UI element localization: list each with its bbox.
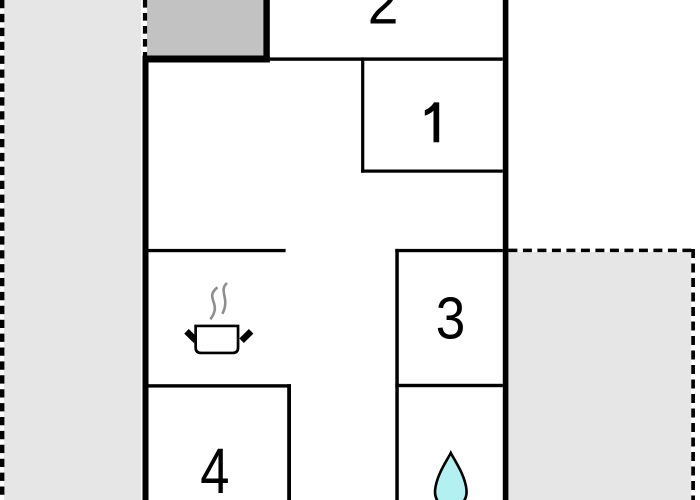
svg-text:4: 4 — [200, 436, 229, 500]
svg-text:3: 3 — [436, 285, 466, 351]
svg-text:2: 2 — [368, 0, 399, 36]
